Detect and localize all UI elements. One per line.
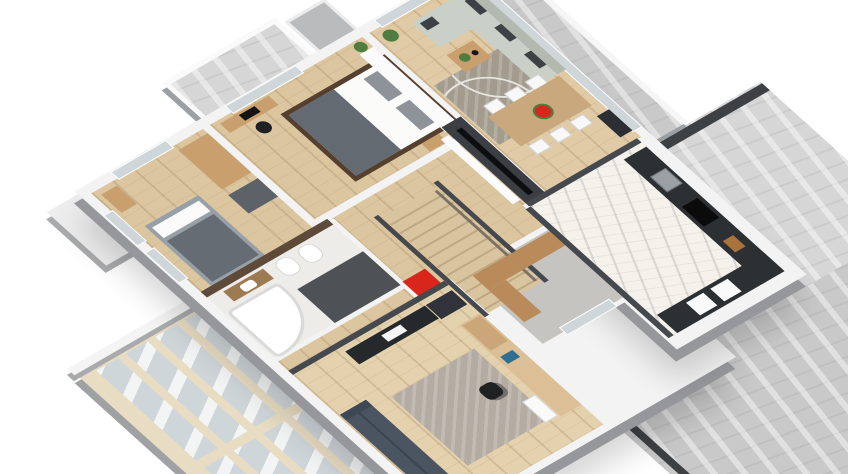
decor-icon bbox=[470, 49, 480, 56]
dishwasher-front-icon bbox=[710, 279, 741, 302]
cutting-board-icon bbox=[723, 235, 746, 252]
laptop-icon bbox=[500, 350, 520, 364]
floorplan-scene bbox=[0, 0, 848, 474]
sofa-cushion bbox=[420, 16, 440, 30]
oven-front-icon bbox=[686, 293, 717, 316]
flower-centerpiece-icon bbox=[528, 101, 558, 123]
